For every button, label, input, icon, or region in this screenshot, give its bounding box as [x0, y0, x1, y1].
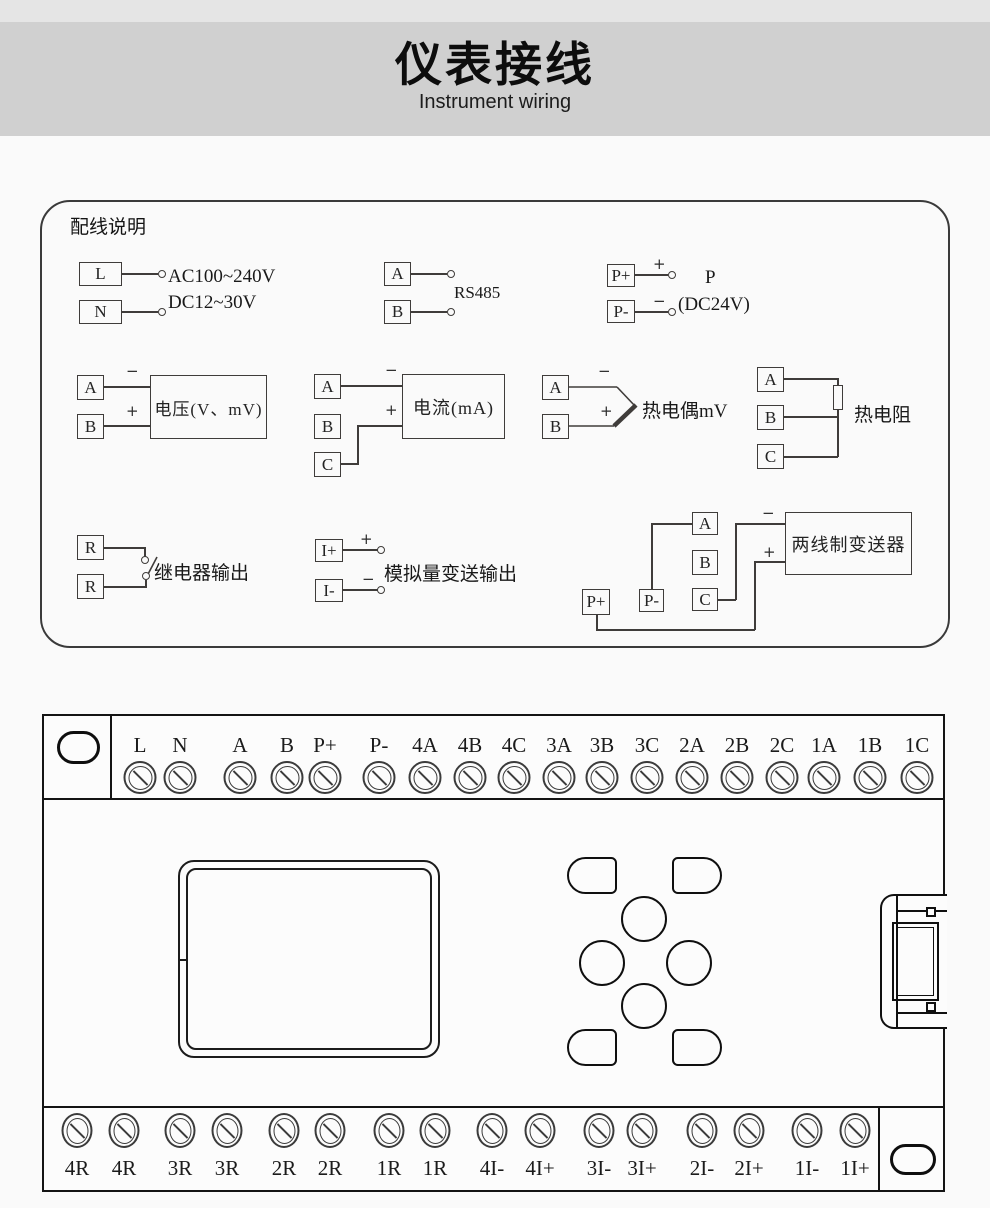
wire [122, 311, 158, 313]
wire [341, 463, 358, 465]
wire-end-node [158, 308, 166, 316]
screw-terminal [165, 1113, 196, 1148]
screw-terminal [792, 1113, 823, 1148]
wire [357, 425, 402, 427]
top-terminal-strip: LNABP+P-4A4B4C3A3B3C2A2B2C1A1B1C [44, 716, 943, 800]
page: 仪表接线 Instrument wiring 配线说明 L N AC100~24… [0, 0, 990, 1208]
terminal-box-B: B [314, 414, 341, 439]
screw-terminal [212, 1113, 243, 1148]
terminal-label: 2I- [690, 1156, 715, 1181]
connector-notch [926, 907, 936, 917]
connector-socket [892, 922, 939, 1001]
terminal-label: 3C [635, 733, 660, 758]
terminal-box-P-: P- [607, 300, 635, 323]
terminal-label: 4C [502, 733, 527, 758]
minus-sign: − [762, 504, 775, 522]
terminal-box-N: N [79, 300, 122, 324]
up-button [621, 896, 667, 942]
minus-sign: − [362, 570, 375, 588]
terminal-box-A: A [692, 512, 718, 535]
terminal-box-B: B [77, 414, 104, 439]
terminal-label: 1A [811, 733, 837, 758]
page-title: 仪表接线 [0, 22, 990, 91]
terminal-box-B: B [757, 405, 784, 430]
wire-end-node [668, 271, 676, 279]
terminal-label: 1B [858, 733, 883, 758]
analog-output-label: 模拟量变送输出 [384, 559, 517, 586]
supply-dc24v-label: (DC24V) [678, 294, 750, 316]
wire-end-node [668, 308, 676, 316]
connector-line [896, 1012, 947, 1014]
terminal-box-A: A [542, 375, 569, 400]
function-button-top-right [672, 857, 722, 894]
connector-notch [926, 1002, 936, 1012]
rtd-resistor [833, 385, 843, 410]
terminal-label: 4B [458, 733, 483, 758]
terminal-box-B: B [692, 550, 718, 575]
minus-sign: − [653, 292, 666, 310]
wire [837, 378, 839, 386]
screw-terminal [420, 1113, 451, 1148]
plus-sign: + [385, 401, 398, 419]
wire [651, 523, 653, 589]
voltage-box: 电压(V、mV) [150, 375, 267, 439]
terminal-label: 4A [412, 733, 438, 758]
wiring-instructions-panel: 配线说明 L N AC100~240V DC12~30V A B RS485 P… [40, 200, 950, 648]
terminal-box-A: A [757, 367, 784, 392]
connector-socket-inner [897, 927, 934, 996]
transmitter-box: 两线制变送器 [785, 512, 912, 575]
rs485-label: RS485 [454, 283, 500, 303]
terminal-label: 4I- [480, 1156, 505, 1181]
screw-terminal [315, 1113, 346, 1148]
terminal-label: 4R [112, 1156, 137, 1181]
screw-terminal [584, 1113, 615, 1148]
terminal-box-P-: P- [639, 589, 664, 612]
wire [651, 523, 692, 525]
screw-terminal [734, 1113, 765, 1148]
terminal-label: B [280, 733, 294, 758]
right-button [666, 940, 712, 986]
terminal-box-C: C [757, 444, 784, 469]
terminal-box-A: A [384, 262, 411, 286]
terminal-box-R: R [77, 574, 104, 599]
wire [104, 425, 150, 427]
terminal-label: 2B [725, 733, 750, 758]
wire [411, 273, 447, 275]
screw-terminal [808, 761, 841, 794]
wire [411, 311, 447, 313]
display-tick [179, 959, 187, 961]
screw-terminal [454, 761, 487, 794]
wire [122, 273, 158, 275]
plus-sign: + [653, 255, 666, 273]
screw-terminal [309, 761, 342, 794]
screw-terminal [525, 1113, 556, 1148]
wire [784, 378, 838, 380]
wire [104, 386, 150, 388]
wire [635, 311, 668, 313]
relay-label: 继电器输出 [154, 558, 249, 585]
wire-end-node [447, 270, 455, 278]
wire [718, 599, 736, 601]
connector-line [896, 910, 947, 912]
wire-end-node [377, 586, 385, 594]
terminal-box-P+: P+ [582, 589, 610, 615]
wire [735, 523, 785, 525]
screw-terminal [631, 761, 664, 794]
panel-title: 配线说明 [70, 212, 146, 239]
terminal-box-P+: P+ [607, 264, 635, 287]
power-dc-label: DC12~30V [168, 292, 256, 314]
terminal-box-I-: I- [315, 579, 343, 602]
screw-terminal [374, 1113, 405, 1148]
lcd-display-inner [186, 868, 432, 1050]
screw-terminal [840, 1113, 871, 1148]
left-button [579, 940, 625, 986]
side-connector [880, 894, 947, 1029]
screw-terminal [164, 761, 197, 794]
terminal-label: 4R [65, 1156, 90, 1181]
screw-terminal [586, 761, 619, 794]
terminal-label: 1C [905, 733, 930, 758]
terminal-label: 1R [423, 1156, 448, 1181]
bottom-terminals-row: 4R4R3R3R2R2R1R1R4I-4I+3I-3I+2I-2I+1I-1I+ [44, 1108, 943, 1190]
terminal-label: 2R [272, 1156, 297, 1181]
function-button-top-left [567, 857, 617, 894]
wire [837, 410, 839, 457]
terminal-label: 2I+ [734, 1156, 763, 1181]
thermocouple-label: 热电偶mV [642, 396, 728, 423]
wire [596, 615, 598, 630]
rtd-label: 热电阻 [854, 400, 911, 427]
plus-sign: + [126, 402, 139, 420]
supply-p-label: P [705, 267, 716, 289]
terminal-label: 2A [679, 733, 705, 758]
wire [754, 561, 756, 630]
screw-terminal [676, 761, 709, 794]
terminal-box-A: A [77, 375, 104, 400]
terminal-box-I+: I+ [315, 539, 343, 562]
wire [735, 523, 737, 600]
minus-sign: − [385, 361, 398, 379]
wire [104, 586, 146, 588]
plus-sign: + [360, 530, 373, 548]
terminal-label: 3B [590, 733, 615, 758]
down-button [621, 983, 667, 1029]
wire [784, 456, 838, 458]
terminal-label: 1I+ [840, 1156, 869, 1181]
screw-terminal [224, 761, 257, 794]
terminal-label: A [232, 733, 247, 758]
screw-terminal [124, 761, 157, 794]
lcd-display [178, 860, 440, 1058]
plus-sign: + [763, 543, 776, 561]
page-subtitle: Instrument wiring [0, 91, 990, 114]
screw-terminal [269, 1113, 300, 1148]
terminal-box-R: R [77, 535, 104, 560]
screw-terminal [543, 761, 576, 794]
terminal-label: N [172, 733, 187, 758]
screw-terminal [363, 761, 396, 794]
terminal-label: L [134, 733, 147, 758]
screw-terminal [271, 761, 304, 794]
minus-sign: − [598, 362, 611, 380]
switch-contact [142, 572, 150, 580]
top-terminals-row: LNABP+P-4A4B4C3A3B3C2A2B2C1A1B1C [44, 716, 943, 798]
wire [635, 274, 668, 276]
screw-terminal [477, 1113, 508, 1148]
wire [596, 629, 755, 631]
minus-sign: − [126, 362, 139, 380]
wire [343, 589, 379, 591]
function-button-bottom-left [567, 1029, 617, 1066]
wire-end-node [447, 308, 455, 316]
terminal-label: 2R [318, 1156, 343, 1181]
current-box: 电流(mA) [402, 374, 505, 439]
terminal-label: P+ [313, 733, 337, 758]
wire [784, 416, 838, 418]
terminal-label: P- [370, 733, 389, 758]
wire [341, 385, 402, 387]
terminal-label: 4I+ [525, 1156, 554, 1181]
wire [343, 549, 379, 551]
terminal-box-B: B [542, 414, 569, 439]
wire [357, 425, 359, 465]
screw-terminal [721, 761, 754, 794]
wire [754, 561, 785, 563]
terminal-box-C: C [692, 588, 718, 611]
bottom-terminal-strip: 4R4R3R3R2R2R1R1R4I-4I+3I-3I+2I-2I+1I-1I+ [44, 1106, 943, 1190]
terminal-box-A: A [314, 374, 341, 399]
screw-terminal [409, 761, 442, 794]
screw-terminal [901, 761, 934, 794]
terminal-box-L: L [79, 262, 122, 286]
screw-terminal [687, 1113, 718, 1148]
wire [104, 547, 145, 549]
switch-contact [141, 556, 149, 564]
header-band: 仪表接线 Instrument wiring [0, 22, 990, 136]
terminal-label: 3A [546, 733, 572, 758]
terminal-label: 3R [168, 1156, 193, 1181]
power-ac-label: AC100~240V [168, 266, 275, 288]
terminal-label: 2C [770, 733, 795, 758]
screw-terminal [854, 761, 887, 794]
function-button-bottom-right [672, 1029, 722, 1066]
plus-sign: + [600, 402, 613, 420]
header-top-strip [0, 0, 990, 22]
screw-terminal [498, 761, 531, 794]
terminal-label: 1I- [795, 1156, 820, 1181]
screw-terminal [627, 1113, 658, 1148]
terminal-label: 3I+ [627, 1156, 656, 1181]
wire-end-node [377, 546, 385, 554]
screw-terminal [109, 1113, 140, 1148]
terminal-label: 3R [215, 1156, 240, 1181]
terminal-box-C: C [314, 452, 341, 477]
screw-terminal [62, 1113, 93, 1148]
wire-end-node [158, 270, 166, 278]
terminal-label: 3I- [587, 1156, 612, 1181]
screw-terminal [766, 761, 799, 794]
terminal-label: 1R [377, 1156, 402, 1181]
terminal-block-device: LNABP+P-4A4B4C3A3B3C2A2B2C1A1B1C [42, 714, 945, 1192]
terminal-box-B: B [384, 300, 411, 324]
